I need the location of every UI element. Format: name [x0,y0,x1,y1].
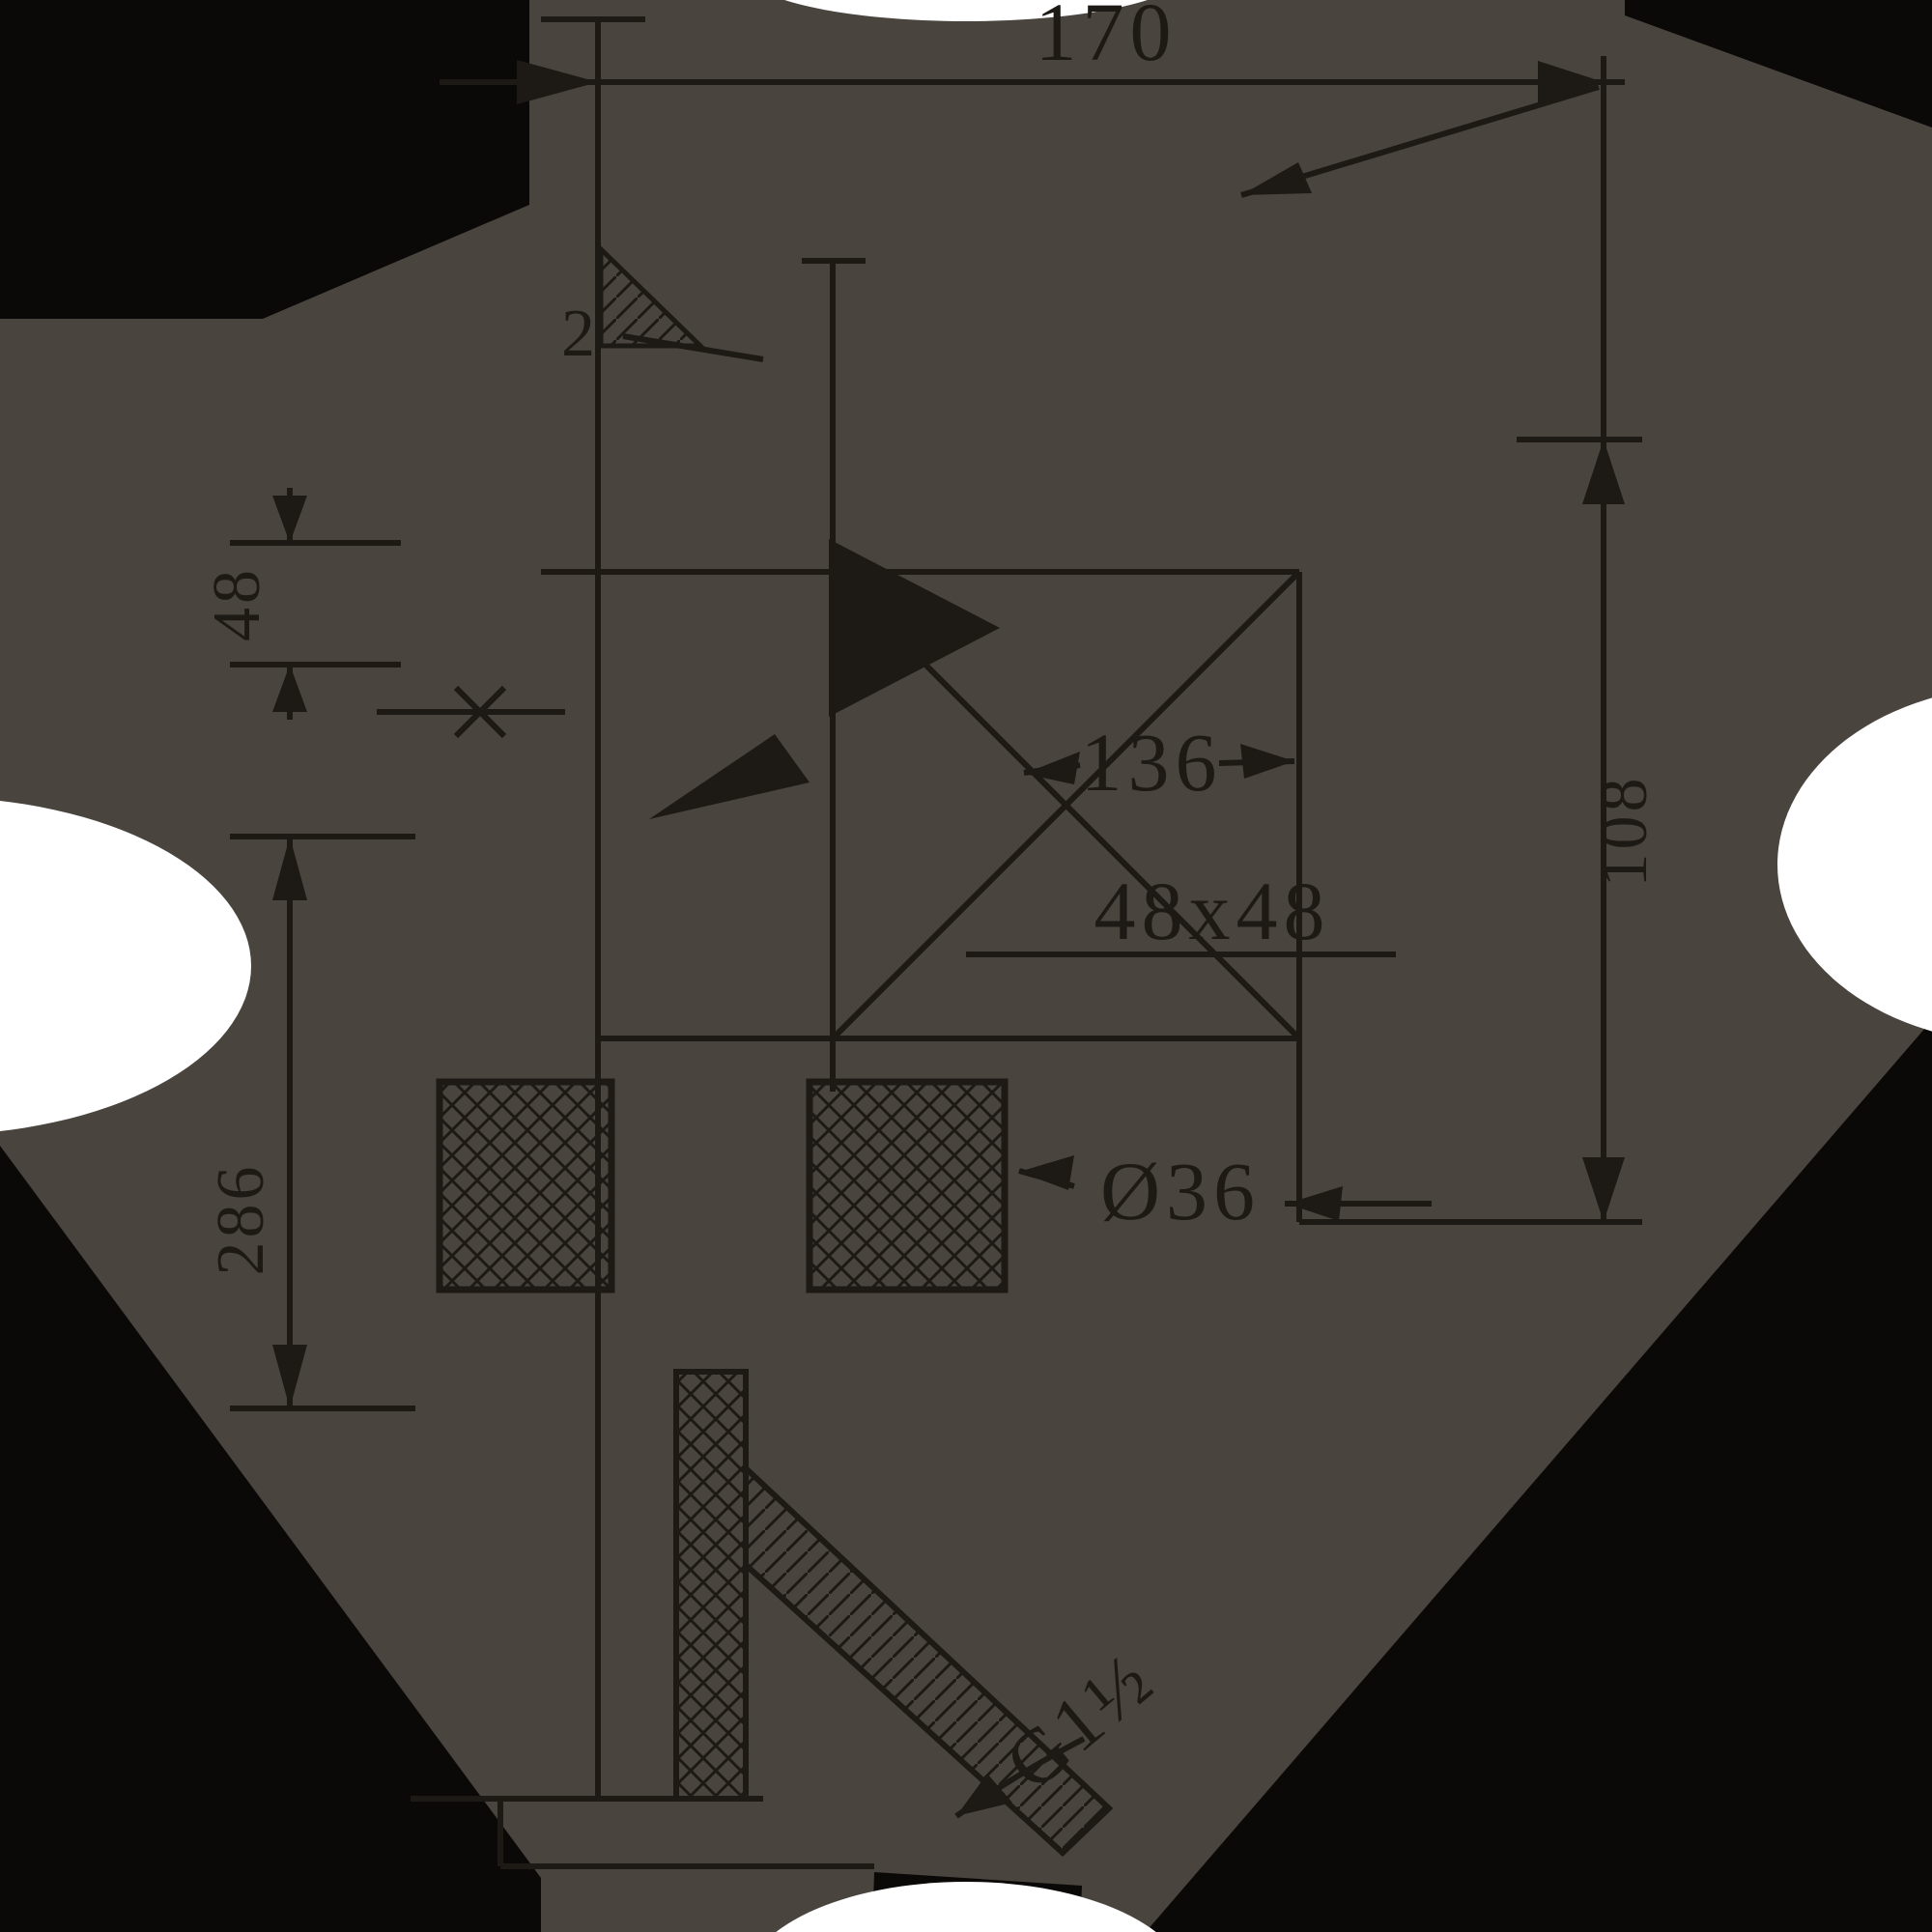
dim-top-width-label: 170 [1036,0,1178,78]
dim-left-overall-label: 286 [204,1163,278,1276]
dim-inner-width-label: 136 [1081,716,1223,809]
section-block-right [810,1082,1005,1290]
thickness-callout-label: 2 [561,297,599,371]
dim-square-section-label: 48x48 [1094,865,1331,957]
technical-drawing-canvas: 170 136 48x48 Ø36 48 286 108 2 G1½ [0,0,1932,1932]
dim-bore-diameter-label: Ø36 [1100,1145,1261,1237]
section-block-left [440,1082,611,1290]
dim-right-height-label: 108 [1587,775,1662,888]
drawing-viewport: 170 136 48x48 Ø36 48 286 108 2 G1½ [0,0,1932,1932]
column-section [676,1372,746,1799]
dim-left-upper-label: 48 [200,566,274,641]
